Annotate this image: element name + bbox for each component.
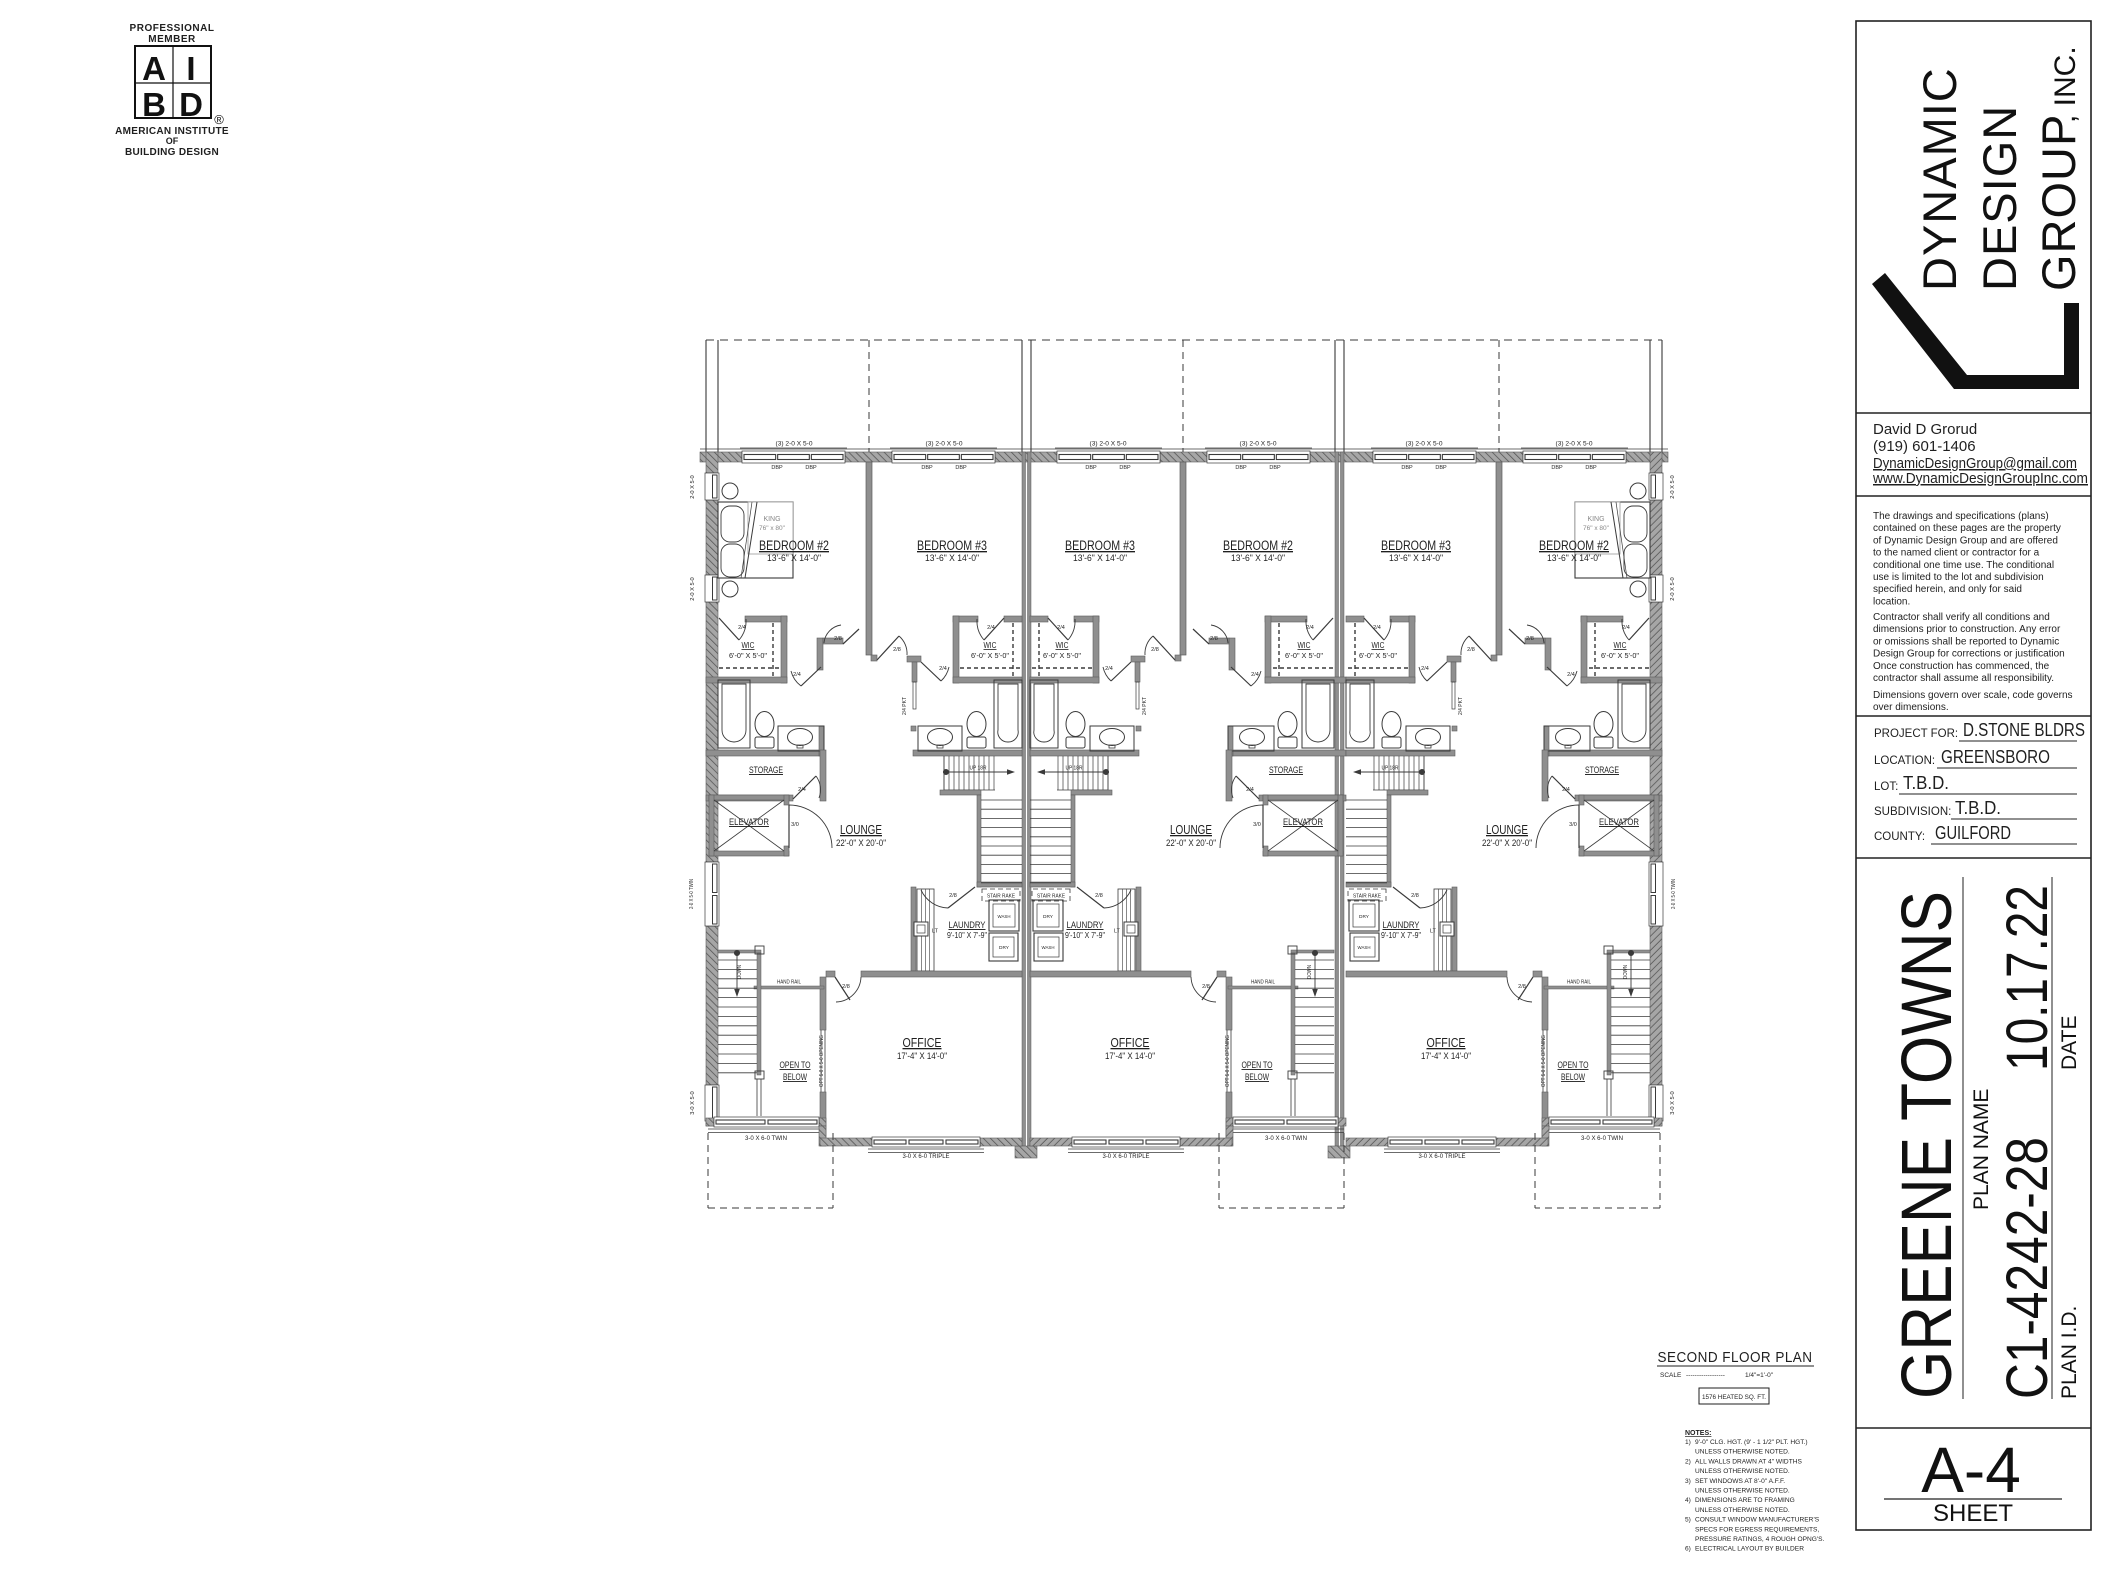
svg-text:LT: LT — [932, 929, 939, 935]
svg-text:ELEVATOR: ELEVATOR — [1599, 817, 1639, 828]
svg-text:3-0 X 5-0: 3-0 X 5-0 — [690, 1091, 696, 1114]
svg-text:13'-6" X 14'-0": 13'-6" X 14'-0" — [925, 553, 979, 564]
svg-text:DBP: DBP — [1435, 465, 1447, 471]
svg-text:(3) 2-0 X 5-0: (3) 2-0 X 5-0 — [1240, 441, 1277, 448]
svg-text:6'-0" X 5'-0": 6'-0" X 5'-0" — [729, 651, 767, 660]
svg-text:------------------: ------------------ — [1686, 1372, 1725, 1379]
svg-text:LT: LT — [1114, 929, 1121, 935]
svg-text:3/0: 3/0 — [1253, 822, 1261, 828]
svg-text:BEDROOM #3: BEDROOM #3 — [1065, 538, 1135, 553]
svg-text:2/8: 2/8 — [949, 893, 957, 899]
svg-text:ELECTRICAL LAYOUT BY BUILDER: ELECTRICAL LAYOUT BY BUILDER — [1695, 1546, 1804, 1553]
svg-text:NOTES:: NOTES: — [1685, 1430, 1711, 1437]
svg-text:3-0 X 6-0 TWIN: 3-0 X 6-0 TWIN — [745, 1135, 787, 1142]
svg-text:17'-4" X 14'-0": 17'-4" X 14'-0" — [1105, 1051, 1155, 1062]
svg-text:of Dynamic Design Group and ar: of Dynamic Design Group and are offered — [1873, 535, 2058, 546]
svg-text:6'-0" X 5'-0": 6'-0" X 5'-0" — [1043, 651, 1081, 660]
svg-text:HAND RAIL: HAND RAIL — [1251, 980, 1275, 986]
svg-text:17'-4" X 14'-0": 17'-4" X 14'-0" — [897, 1051, 947, 1062]
svg-text:OPEN TO: OPEN TO — [1242, 1060, 1273, 1070]
svg-text:(3) 2-0 X 5-0: (3) 2-0 X 5-0 — [776, 441, 813, 448]
svg-text:CONSULT WINDOW MANUFACTURER'S: CONSULT WINDOW MANUFACTURER'S — [1695, 1517, 1820, 1524]
svg-text:3): 3) — [1685, 1478, 1691, 1485]
svg-text:DBP: DBP — [1085, 465, 1097, 471]
svg-text:3-0 X 5-0: 3-0 X 5-0 — [1670, 1091, 1676, 1114]
svg-text:OPT 6-0 X 5-0 OPENING: OPT 6-0 X 5-0 OPENING — [819, 1035, 825, 1087]
svg-text:WIC: WIC — [984, 641, 997, 650]
svg-text:LOUNGE: LOUNGE — [1486, 822, 1528, 837]
svg-text:D: D — [179, 86, 203, 123]
svg-text:2/4: 2/4 — [939, 666, 947, 672]
svg-text:WIC: WIC — [1298, 641, 1311, 650]
svg-text:OFFICE: OFFICE — [1427, 1035, 1466, 1050]
svg-text:2/4: 2/4 — [1057, 625, 1065, 631]
svg-text:PLAN NAME: PLAN NAME — [1970, 1089, 1993, 1210]
svg-text:DBP: DBP — [955, 465, 967, 471]
svg-text:BELOW: BELOW — [1561, 1072, 1585, 1082]
svg-text:LAUNDRY: LAUNDRY — [1383, 920, 1421, 931]
svg-text:6'-0" X 5'-0": 6'-0" X 5'-0" — [1601, 651, 1639, 660]
svg-text:STAIR RAKE: STAIR RAKE — [1353, 894, 1381, 900]
svg-text:DBP: DBP — [1585, 465, 1597, 471]
svg-text:BEDROOM #2: BEDROOM #2 — [1539, 538, 1609, 553]
svg-text:UP 18R: UP 18R — [1382, 766, 1399, 772]
svg-text:76" x 80": 76" x 80" — [759, 525, 786, 532]
svg-text:WASH: WASH — [1358, 945, 1371, 950]
svg-text:1/4"=1'-0": 1/4"=1'-0" — [1745, 1372, 1774, 1379]
svg-text:3-0 X 6-0 TWIN: 3-0 X 6-0 TWIN — [1265, 1135, 1307, 1142]
svg-text:2-0 X 5-0: 2-0 X 5-0 — [1670, 577, 1676, 600]
svg-text:MEMBER: MEMBER — [148, 34, 196, 45]
svg-text:DRY: DRY — [1359, 914, 1369, 919]
svg-text:2/8: 2/8 — [1526, 636, 1534, 642]
svg-text:9'-10" X 7'-9": 9'-10" X 7'-9" — [1381, 931, 1421, 940]
svg-text:WASH: WASH — [1042, 945, 1055, 950]
svg-text:LT: LT — [1430, 929, 1437, 935]
svg-text:WIC: WIC — [1614, 641, 1627, 650]
svg-text:KING: KING — [1587, 516, 1604, 523]
svg-text:2/4: 2/4 — [1246, 787, 1254, 793]
svg-text:T.B.D.: T.B.D. — [1903, 773, 1949, 793]
svg-text:2/8: 2/8 — [1210, 636, 1218, 642]
svg-text:BUILDING DESIGN: BUILDING DESIGN — [125, 147, 219, 158]
svg-text:OPT 6-0 X 5-0 OPENING: OPT 6-0 X 5-0 OPENING — [1225, 1035, 1231, 1087]
svg-text:DBP: DBP — [771, 465, 783, 471]
svg-text:(3) 2-0 X 5-0: (3) 2-0 X 5-0 — [1090, 441, 1127, 448]
svg-text:6'-0" X 5'-0": 6'-0" X 5'-0" — [1359, 651, 1397, 660]
svg-text:STORAGE: STORAGE — [749, 765, 783, 776]
svg-text:DESIGN: DESIGN — [1973, 105, 2026, 291]
svg-text:OFFICE: OFFICE — [903, 1035, 942, 1050]
svg-text:I: I — [186, 50, 195, 87]
svg-text:DynamicDesignGroup@gmail.com: DynamicDesignGroup@gmail.com — [1873, 456, 2077, 472]
svg-text:STORAGE: STORAGE — [1585, 765, 1619, 776]
svg-text:2/4: 2/4 — [738, 625, 746, 631]
svg-text:9'-10" X 7'-9": 9'-10" X 7'-9" — [947, 931, 987, 940]
svg-text:LOUNGE: LOUNGE — [1170, 822, 1212, 837]
svg-text:location.: location. — [1873, 596, 1910, 607]
svg-text:PROJECT FOR:: PROJECT FOR: — [1874, 728, 1958, 740]
svg-text:SET WINDOWS AT 8'-0" A.F.F.: SET WINDOWS AT 8'-0" A.F.F. — [1695, 1478, 1785, 1485]
svg-text:HAND RAIL: HAND RAIL — [1567, 980, 1591, 986]
svg-text:GUILFORD: GUILFORD — [1935, 823, 2011, 843]
svg-text:DOWN: DOWN — [1307, 965, 1313, 979]
svg-text:2/4: 2/4 — [1622, 625, 1630, 631]
svg-text:22'-0" X 20'-0": 22'-0" X 20'-0" — [1482, 838, 1532, 849]
svg-text:13'-6" X 14'-0": 13'-6" X 14'-0" — [1547, 553, 1601, 564]
svg-text:DBP: DBP — [1269, 465, 1281, 471]
svg-text:WIC: WIC — [1056, 641, 1069, 650]
svg-text:22'-0" X 20'-0": 22'-0" X 20'-0" — [1166, 838, 1216, 849]
svg-text:13'-6" X 14'-0": 13'-6" X 14'-0" — [1073, 553, 1127, 564]
svg-text:GREENSBORO: GREENSBORO — [1941, 747, 2050, 767]
svg-text:2/8: 2/8 — [893, 647, 901, 653]
svg-text:GROUP: GROUP — [2032, 114, 2085, 291]
svg-text:OFFICE: OFFICE — [1111, 1035, 1150, 1050]
svg-text:OPT 6-0 X 5-0 OPENING: OPT 6-0 X 5-0 OPENING — [1541, 1035, 1547, 1087]
svg-text:LAUNDRY: LAUNDRY — [949, 920, 987, 931]
svg-text:LOCATION:: LOCATION: — [1874, 755, 1935, 767]
svg-text:(3) 2-0 X 5-0: (3) 2-0 X 5-0 — [1406, 441, 1443, 448]
svg-text:2/8: 2/8 — [1151, 647, 1159, 653]
svg-text:2/8: 2/8 — [1202, 984, 1210, 990]
svg-text:2/4: 2/4 — [793, 672, 801, 678]
svg-text:SECOND FLOOR PLAN: SECOND FLOOR PLAN — [1658, 1350, 1813, 1366]
svg-text:3/0: 3/0 — [791, 822, 799, 828]
svg-text:76" x 80": 76" x 80" — [1583, 525, 1610, 532]
svg-text:BELOW: BELOW — [783, 1072, 807, 1082]
svg-text:6'-0" X 5'-0": 6'-0" X 5'-0" — [971, 651, 1009, 660]
svg-text:13'-6" X 14'-0": 13'-6" X 14'-0" — [767, 553, 821, 564]
svg-text:2/4: 2/4 — [987, 625, 995, 631]
svg-text:2/4 PKT: 2/4 PKT — [1142, 696, 1148, 715]
svg-text:2-0 X 5-0: 2-0 X 5-0 — [690, 577, 696, 600]
svg-text:BEDROOM #3: BEDROOM #3 — [917, 538, 987, 553]
svg-text:WIC: WIC — [742, 641, 755, 650]
svg-text:ELEVATOR: ELEVATOR — [729, 817, 769, 828]
svg-text:DRY: DRY — [999, 945, 1009, 950]
svg-text:9'-0" CLG. HGT. (9' - 1 1/2": 9'-0" CLG. HGT. (9' - 1 1/2" PLT. HGT.) — [1695, 1439, 1808, 1446]
svg-text:10.17.22: 10.17.22 — [1995, 885, 2060, 1071]
svg-text:OPEN TO: OPEN TO — [780, 1060, 811, 1070]
svg-text:(3) 2-0 X 5-0: (3) 2-0 X 5-0 — [926, 441, 963, 448]
svg-text:WIC: WIC — [1372, 641, 1385, 650]
svg-text:UNLESS OTHERWISE NOTED.: UNLESS OTHERWISE NOTED. — [1695, 1488, 1790, 1495]
svg-text:The drawings and specification: The drawings and specifications (plans) — [1873, 511, 2049, 522]
svg-text:DBP: DBP — [1235, 465, 1247, 471]
svg-text:DOWN: DOWN — [1623, 965, 1629, 979]
svg-text:3/0: 3/0 — [1569, 822, 1577, 828]
svg-text:UNLESS OTHERWISE NOTED.: UNLESS OTHERWISE NOTED. — [1695, 1468, 1790, 1475]
svg-text:OPEN TO: OPEN TO — [1558, 1060, 1589, 1070]
svg-text:3-0 X 6-0 TRIPLE: 3-0 X 6-0 TRIPLE — [1419, 1153, 1467, 1160]
svg-text:2/4: 2/4 — [1567, 672, 1575, 678]
svg-text:9'-10" X 7'-9": 9'-10" X 7'-9" — [1065, 931, 1105, 940]
svg-text:2-0 X 5-0: 2-0 X 5-0 — [1670, 475, 1676, 498]
svg-text:BELOW: BELOW — [1245, 1072, 1269, 1082]
svg-text:(919) 601-1406: (919) 601-1406 — [1873, 438, 1976, 455]
svg-text:specified herein, and only for: specified herein, and only for said — [1873, 584, 2022, 595]
svg-text:2-0 X 5-0 TWIN: 2-0 X 5-0 TWIN — [1671, 879, 1677, 909]
svg-text:6): 6) — [1685, 1546, 1691, 1553]
svg-text:Once construction has commence: Once construction has commenced, the — [1873, 661, 2050, 672]
svg-text:Dimensions govern over scale,: Dimensions govern over scale, code gover… — [1873, 690, 2073, 701]
svg-text:3-0 X 6-0 TRIPLE: 3-0 X 6-0 TRIPLE — [903, 1153, 951, 1160]
svg-text:DIMENSIONS ARE TO FRAMING: DIMENSIONS ARE TO FRAMING — [1695, 1497, 1795, 1504]
svg-text:BEDROOM #2: BEDROOM #2 — [1223, 538, 1293, 553]
svg-text:UNLESS OTHERWISE NOTED.: UNLESS OTHERWISE NOTED. — [1695, 1507, 1790, 1514]
svg-text:2/4: 2/4 — [1562, 787, 1570, 793]
svg-text:2/8: 2/8 — [1518, 984, 1526, 990]
svg-text:DBP: DBP — [921, 465, 933, 471]
svg-text:13'-6" X 14'-0": 13'-6" X 14'-0" — [1231, 553, 1285, 564]
svg-text:to the named client or contrac: to the named client or contractor for a — [1873, 548, 2040, 559]
svg-text:ALL WALLS DRAWN AT 4" WIDTHS: ALL WALLS DRAWN AT 4" WIDTHS — [1695, 1458, 1802, 1465]
svg-text:GREENE TOWNS: GREENE TOWNS — [1888, 891, 1967, 1399]
svg-text:3-0 X 6-0 TWIN: 3-0 X 6-0 TWIN — [1581, 1135, 1623, 1142]
svg-text:22'-0" X 20'-0": 22'-0" X 20'-0" — [836, 838, 886, 849]
svg-text:5): 5) — [1685, 1517, 1691, 1524]
svg-text:contractor shall assume all re: contractor shall assume all responsibili… — [1873, 673, 2054, 684]
svg-text:STAIR RAKE: STAIR RAKE — [1037, 894, 1065, 900]
svg-text:PRESSURE RATINGS, 4 ROUGH OPNG: PRESSURE RATINGS, 4 ROUGH OPNG'S. — [1695, 1536, 1825, 1543]
svg-text:17'-4" X 14'-0": 17'-4" X 14'-0" — [1421, 1051, 1471, 1062]
svg-text:2/8: 2/8 — [834, 636, 842, 642]
svg-text:6'-0" X 5'-0": 6'-0" X 5'-0" — [1285, 651, 1323, 660]
svg-text:2/4: 2/4 — [1251, 672, 1259, 678]
svg-text:WASH: WASH — [998, 914, 1011, 919]
svg-text:dimensions prior to constructi: dimensions prior to construction. Any er… — [1873, 624, 2061, 635]
svg-text:SCALE: SCALE — [1660, 1372, 1682, 1379]
svg-text:LOUNGE: LOUNGE — [840, 822, 882, 837]
svg-text:T.B.D.: T.B.D. — [1955, 798, 2001, 818]
svg-text:SHEET: SHEET — [1933, 1500, 2013, 1527]
svg-text:use is limited to the lot and: use is limited to the lot and subdivisio… — [1873, 572, 2044, 583]
svg-text:UP 18R: UP 18R — [970, 766, 987, 772]
svg-text:Design Group for corrections o: Design Group for corrections or justific… — [1873, 649, 2065, 660]
svg-text:A-4: A-4 — [1921, 1434, 2021, 1506]
svg-text:BEDROOM #3: BEDROOM #3 — [1381, 538, 1451, 553]
svg-text:PROFESSIONAL: PROFESSIONAL — [130, 23, 215, 34]
svg-text:or omissions shall be reported: or omissions shall be reported to Dynami… — [1873, 636, 2059, 647]
svg-text:PLAN I.D.: PLAN I.D. — [2058, 1306, 2081, 1399]
svg-text:2/4: 2/4 — [1105, 666, 1113, 672]
svg-text:2/8: 2/8 — [1467, 647, 1475, 653]
svg-text:B: B — [142, 86, 166, 123]
svg-text:A: A — [142, 50, 166, 87]
svg-text:2/4 PKT: 2/4 PKT — [1458, 696, 1464, 715]
svg-text:2/8: 2/8 — [842, 984, 850, 990]
svg-text:(3) 2-0 X 5-0: (3) 2-0 X 5-0 — [1556, 441, 1593, 448]
svg-text:2/4 PKT: 2/4 PKT — [902, 696, 908, 715]
svg-text:DBP: DBP — [1401, 465, 1413, 471]
svg-text:Contractor shall verify all co: Contractor shall verify all conditions a… — [1873, 612, 2050, 623]
svg-text:DRY: DRY — [1043, 914, 1053, 919]
svg-text:2/8: 2/8 — [1411, 893, 1419, 899]
svg-text:UNLESS OTHERWISE NOTED.: UNLESS OTHERWISE NOTED. — [1695, 1449, 1790, 1456]
svg-text:®: ® — [214, 112, 224, 127]
svg-text:, INC.: , INC. — [2049, 46, 2082, 123]
svg-text:SUBDIVISION:: SUBDIVISION: — [1874, 806, 1951, 818]
svg-text:ELEVATOR: ELEVATOR — [1283, 817, 1323, 828]
svg-text:DBP: DBP — [1551, 465, 1563, 471]
svg-text:2/4: 2/4 — [1421, 666, 1429, 672]
svg-text:4): 4) — [1685, 1497, 1691, 1504]
svg-text:2-0 X 5-0 TWIN: 2-0 X 5-0 TWIN — [689, 879, 695, 909]
svg-text:STAIR RAKE: STAIR RAKE — [987, 894, 1015, 900]
svg-text:2-0 X 5-0: 2-0 X 5-0 — [690, 475, 696, 498]
svg-text:over dimensions.: over dimensions. — [1873, 702, 1949, 713]
svg-text:David D Grorud: David D Grorud — [1873, 421, 1977, 438]
svg-text:UP 18R: UP 18R — [1066, 766, 1083, 772]
svg-text:LAUNDRY: LAUNDRY — [1067, 920, 1105, 931]
svg-text:D.STONE BLDRS: D.STONE BLDRS — [1963, 720, 2085, 740]
svg-text:DOWN: DOWN — [737, 965, 743, 979]
svg-text:www.DynamicDesignGroupInc.com: www.DynamicDesignGroupInc.com — [1872, 471, 2088, 487]
svg-text:C1-4242-28: C1-4242-28 — [1995, 1137, 2060, 1399]
svg-text:SPECS FOR EGRESS REQUIREMENTS,: SPECS FOR EGRESS REQUIREMENTS, — [1695, 1526, 1819, 1533]
svg-text:DBP: DBP — [805, 465, 817, 471]
svg-text:2): 2) — [1685, 1458, 1691, 1465]
svg-text:DBP: DBP — [1119, 465, 1131, 471]
svg-text:2/8: 2/8 — [1095, 893, 1103, 899]
svg-text:COUNTY:: COUNTY: — [1874, 831, 1925, 843]
svg-text:2/4: 2/4 — [1373, 625, 1381, 631]
svg-text:HAND RAIL: HAND RAIL — [777, 980, 801, 986]
svg-text:BEDROOM #2: BEDROOM #2 — [759, 538, 829, 553]
svg-text:LOT:: LOT: — [1874, 781, 1898, 793]
svg-text:OF: OF — [166, 136, 179, 146]
svg-text:2/4: 2/4 — [1306, 625, 1314, 631]
svg-text:3-0 X 6-0 TRIPLE: 3-0 X 6-0 TRIPLE — [1103, 1153, 1151, 1160]
svg-text:DATE: DATE — [2058, 1016, 2081, 1070]
svg-text:1576 HEATED SQ. FT.: 1576 HEATED SQ. FT. — [1702, 1394, 1766, 1401]
svg-text:KING: KING — [763, 516, 780, 523]
svg-text:2/4: 2/4 — [798, 787, 806, 793]
svg-text:1): 1) — [1685, 1439, 1691, 1446]
svg-text:STORAGE: STORAGE — [1269, 765, 1303, 776]
svg-text:13'-6" X 14'-0": 13'-6" X 14'-0" — [1389, 553, 1443, 564]
svg-text:conditional one time use. The: conditional one time use. The conditiona… — [1873, 560, 2054, 571]
svg-text:DYNAMIC: DYNAMIC — [1913, 67, 1966, 291]
svg-text:contained on these pages are t: contained on these pages are the propert… — [1873, 523, 2061, 534]
